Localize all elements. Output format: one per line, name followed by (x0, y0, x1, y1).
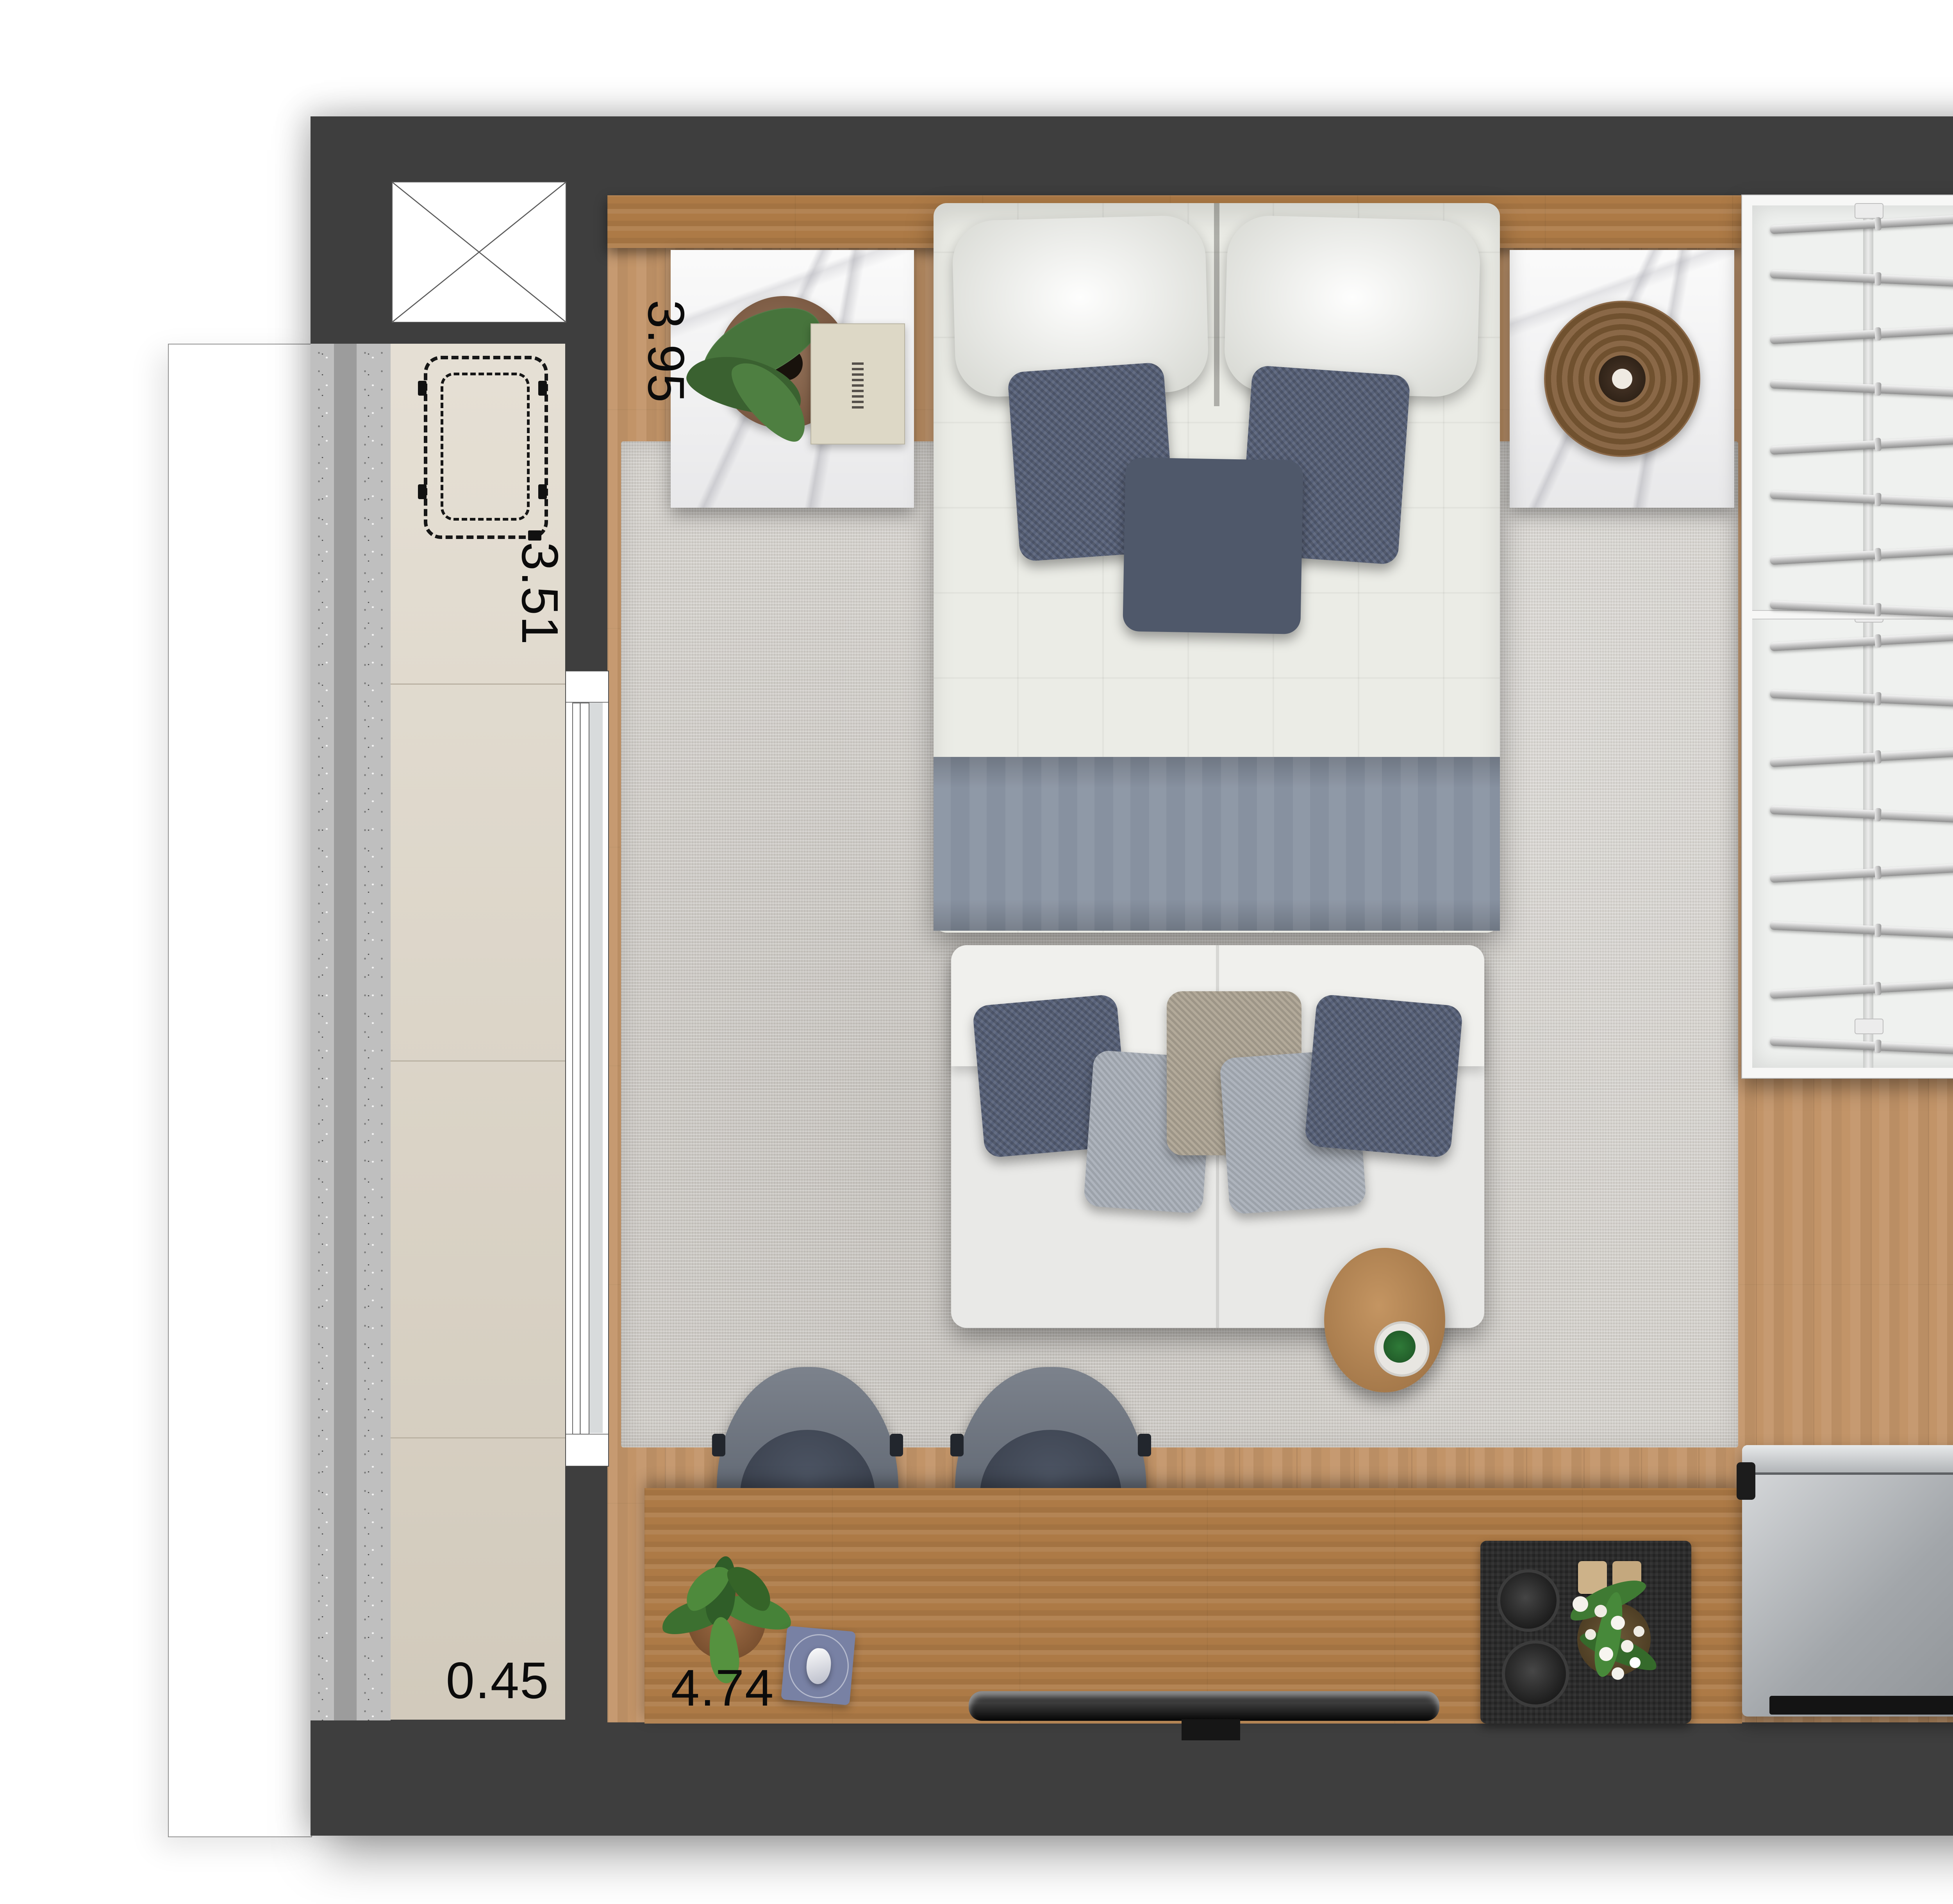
door-rail-line (580, 703, 581, 1434)
ac-bracket-icon (418, 484, 427, 499)
bed-blanket (934, 757, 1500, 931)
floor-plan-page: 3.95 2.12 3.51 1.42 0.45 4.74 (0, 0, 1953, 1904)
sofa-pillow-navy-right (1304, 994, 1464, 1158)
balcony-granite-edge-outer (311, 344, 334, 1720)
throw-pillow-navy-center (1123, 457, 1303, 634)
door-sill (566, 671, 608, 703)
balcony-drain-channel (334, 344, 357, 1720)
blue-plate (781, 1626, 856, 1706)
rattan-tray-dish (1612, 369, 1632, 389)
hanger-icon (1770, 324, 1953, 344)
book-title-lines (852, 362, 864, 409)
hanger-icon (1770, 380, 1953, 398)
chair-armrest (950, 1434, 964, 1456)
wall-segment (565, 344, 607, 671)
ac-condenser-inner-outline (441, 373, 530, 521)
fridge (1742, 1445, 1953, 1717)
balcony-sliding-door (565, 671, 609, 1467)
balcony-grout (391, 683, 565, 685)
dimension-label: 4.74 (671, 1662, 775, 1714)
hanger-icon (1770, 805, 1953, 824)
round-plate-icon (1497, 1569, 1560, 1632)
decor-book (810, 323, 905, 444)
bed-pillow-gap (1214, 203, 1219, 406)
serving-mat (1480, 1541, 1691, 1724)
fridge-hinge (1737, 1462, 1755, 1500)
bed (934, 203, 1500, 933)
ac-bracket-icon (538, 381, 547, 396)
shaft-x-box-top-left (392, 182, 566, 323)
dimension-label: 0.45 (446, 1655, 550, 1706)
hanger-icon (1770, 862, 1953, 883)
ac-bracket-icon (418, 381, 427, 396)
nightstand-right (1510, 250, 1734, 508)
hanger-icon (1770, 690, 1953, 708)
wall-segment (565, 1465, 607, 1720)
hanger-icon (1770, 1037, 1953, 1055)
fridge-base (1769, 1696, 1953, 1715)
hanger-icon (1770, 746, 1953, 767)
wardrobe (1742, 195, 1953, 1078)
door-sill (566, 1434, 608, 1465)
hanger-icon (1770, 490, 1953, 509)
floor-plan-body: 3.95 2.12 3.51 1.42 0.45 4.74 (311, 116, 1953, 1836)
hanger-icon (1770, 270, 1953, 288)
hanger-icon (1770, 544, 1953, 565)
balcony-granite-edge-inner (357, 344, 391, 1720)
round-side-table (1324, 1248, 1445, 1392)
ac-valve-icon (528, 530, 541, 541)
tv-monitor (969, 1691, 1439, 1721)
round-plate-icon (1502, 1640, 1569, 1708)
dimension-label: 3.51 (514, 542, 566, 646)
door-glass (589, 703, 603, 1433)
fridge-top-band (1742, 1445, 1953, 1475)
hanger-icon (1770, 921, 1953, 940)
chair-armrest (890, 1434, 903, 1456)
hanger-icon (1770, 631, 1953, 651)
door-panel-rail (572, 703, 589, 1435)
chair-armrest (712, 1434, 725, 1456)
table-plant-icon (1384, 1331, 1416, 1363)
ac-bracket-icon (538, 484, 547, 499)
hanger-icon (1770, 434, 1953, 455)
hanger-section-bottom (1752, 626, 1953, 1061)
tv-stand (1182, 1719, 1240, 1740)
balcony-outside-ledge (168, 344, 312, 1837)
hanger-icon (1770, 600, 1953, 619)
dimension-label: 3.95 (640, 300, 692, 403)
nightstand-left (671, 250, 914, 508)
hanger-icon (1770, 214, 1953, 234)
hanger-icon (1770, 978, 1953, 999)
balcony-grout (391, 1060, 565, 1062)
hanger-section-top (1752, 209, 1953, 624)
chair-armrest (1138, 1434, 1151, 1456)
white-flowers-icon (1573, 1596, 1588, 1612)
balcony-grout (391, 1437, 565, 1438)
